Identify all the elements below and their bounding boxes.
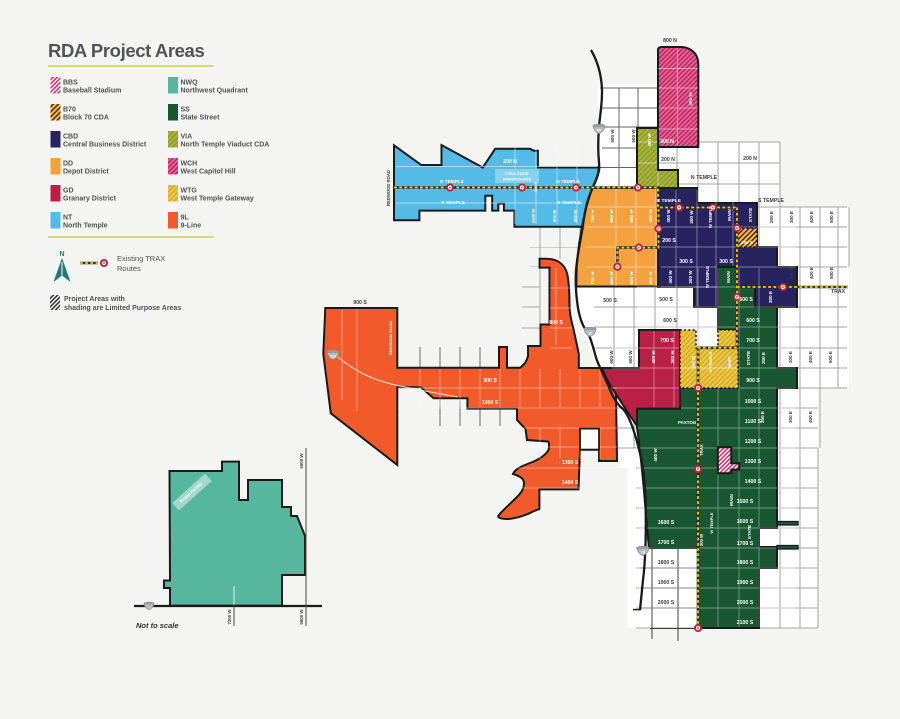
svg-text:MAIN: MAIN [726,270,731,282]
svg-text:Existing TRAX: Existing TRAX [117,254,165,263]
svg-text:300 S: 300 S [679,259,693,265]
svg-text:1000 S: 1000 S [482,400,499,406]
svg-text:VIA: VIA [181,134,193,141]
svg-text:W TEMPLE: W TEMPLE [709,512,714,533]
svg-text:900 W: 900 W [552,210,557,222]
svg-text:400 E: 400 E [809,267,814,279]
svg-text:200 N: 200 N [661,157,675,163]
svg-text:7200 W: 7200 W [227,609,232,625]
svg-text:North Temple Viaduct CDA: North Temple Viaduct CDA [181,142,270,149]
svg-text:800 N: 800 N [663,38,677,44]
svg-text:500 E: 500 E [829,211,834,223]
svg-text:300 E: 300 E [789,211,794,223]
svg-text:1400 S: 1400 S [745,479,762,485]
svg-text:W TEMPLE: W TEMPLE [708,351,713,372]
svg-text:1600 S: 1600 S [658,520,675,526]
svg-text:200 W: 200 W [699,534,704,546]
svg-text:TRAX: TRAX [699,444,704,456]
svg-text:NWQ: NWQ [181,80,199,87]
svg-text:600 W: 600 W [609,271,614,285]
svg-text:REDWOOD ROAD: REDWOOD ROAD [386,170,391,206]
svg-text:200 E: 200 E [769,211,774,223]
svg-text:1600 S: 1600 S [737,519,754,525]
svg-text:1000 W: 1000 W [531,209,536,223]
svg-text:S TEMPLE: S TEMPLE [657,198,682,204]
svg-text:200 W: 200 W [689,210,694,224]
svg-text:300 W: 300 W [666,209,671,223]
svg-text:700 W: 700 W [590,209,595,223]
svg-text:W TEMPLE: W TEMPLE [705,266,710,288]
svg-text:500 W: 500 W [629,209,634,223]
svg-text:shading are Limited Purpose Ar: shading are Limited Purpose Areas [64,305,181,312]
svg-text:200 S: 200 S [741,240,753,245]
svg-text:500 W: 500 W [628,350,633,364]
svg-text:900 S: 900 S [746,378,760,384]
svg-text:N TEMPLE: N TEMPLE [691,175,718,181]
svg-text:215: 215 [330,355,336,359]
svg-text:STATE: STATE [747,525,752,539]
svg-text:700 S: 700 S [746,338,760,344]
svg-text:300 N: 300 N [660,139,674,145]
svg-text:GD: GD [63,188,74,195]
svg-text:2100 S: 2100 S [737,620,754,626]
svg-text:400 W: 400 W [653,448,658,462]
svg-text:RDA Project Areas: RDA Project Areas [48,40,204,61]
svg-text:400 E: 400 E [808,351,813,363]
svg-text:700 W: 700 W [590,271,595,285]
svg-text:400 E: 400 E [809,211,814,223]
svg-text:800 W: 800 W [573,210,578,222]
svg-text:Routes: Routes [117,264,141,273]
svg-text:FAIRGROUNDS: FAIRGROUNDS [503,178,532,182]
svg-text:500 S: 500 S [603,298,617,304]
svg-text:N TEMPLE: N TEMPLE [440,179,464,184]
svg-text:5600 W: 5600 W [299,453,304,469]
svg-text:15: 15 [588,332,592,336]
svg-text:PAXTON: PAXTON [678,420,696,425]
svg-text:NT: NT [63,215,73,222]
svg-text:200 E: 200 E [768,291,773,303]
svg-text:BBS: BBS [63,80,78,87]
svg-text:North Temple: North Temple [63,223,108,230]
svg-text:200 E: 200 E [761,352,766,364]
svg-text:WCH: WCH [181,161,198,168]
svg-text:5600 W: 5600 W [299,609,304,625]
svg-text:200 E: 200 E [760,411,765,423]
svg-text:500 E: 500 E [828,351,833,363]
svg-text:WTG: WTG [181,188,198,195]
svg-text:W TEMPLE: W TEMPLE [708,206,713,228]
svg-text:1800 S: 1800 S [658,560,675,566]
svg-text:S TEMPLE: S TEMPLE [758,198,784,204]
svg-text:N TEMPLE: N TEMPLE [556,179,580,184]
svg-text:600 W: 600 W [609,350,614,364]
svg-text:Block 70 CDA: Block 70 CDA [63,115,109,122]
svg-text:2000 S: 2000 S [658,600,675,606]
svg-text:300 W: 300 W [670,350,675,364]
svg-text:1900 S: 1900 S [737,580,754,586]
svg-text:300 E: 300 E [788,411,793,423]
svg-text:B70: B70 [63,107,76,114]
svg-text:STATE: STATE [746,351,751,365]
svg-text:MAIN: MAIN [729,493,734,505]
svg-text:S TEMPLE: S TEMPLE [557,200,580,205]
svg-text:9-Line: 9-Line [181,223,202,230]
svg-text:West Temple Gateway: West Temple Gateway [181,196,254,203]
svg-text:600 S: 600 S [746,318,760,324]
svg-text:200 W: 200 W [691,356,696,368]
svg-text:400 W: 400 W [647,133,652,147]
svg-text:1500 S: 1500 S [737,499,754,505]
svg-text:SS: SS [181,107,191,114]
svg-text:1700 S: 1700 S [737,541,754,547]
svg-text:1400 S: 1400 S [562,480,579,486]
svg-text:1200 S: 1200 S [745,439,762,445]
svg-text:Central Business District: Central Business District [63,142,147,149]
svg-text:300 S: 300 S [719,259,733,265]
svg-text:300 E: 300 E [789,267,794,279]
svg-text:Depot District: Depot District [63,169,110,176]
svg-text:15: 15 [641,551,645,555]
svg-text:2000 S: 2000 S [737,600,754,606]
svg-text:Granary District: Granary District [63,196,117,203]
svg-text:TRAX: TRAX [831,289,846,295]
svg-text:500 E: 500 E [829,267,834,279]
svg-text:500 W: 500 W [629,271,634,285]
svg-text:700 S: 700 S [660,338,674,344]
svg-text:200 N: 200 N [503,159,517,165]
svg-text:MAIN: MAIN [727,357,732,368]
svg-text:400 W: 400 W [648,271,653,285]
svg-text:UTAH STATE: UTAH STATE [505,172,529,176]
svg-text:1700 S: 1700 S [658,540,675,546]
svg-text:500 W: 500 W [631,129,636,143]
svg-text:Northwest Quadrant: Northwest Quadrant [181,88,249,95]
svg-text:200 S: 200 S [662,238,676,244]
svg-text:STATE: STATE [748,208,753,222]
svg-text:MAIN: MAIN [727,208,732,220]
svg-text:1300 S: 1300 S [562,460,579,466]
svg-text:600 W: 600 W [609,209,614,223]
svg-text:9L: 9L [181,215,190,222]
svg-text:500 S: 500 S [739,297,753,303]
svg-text:300 W: 300 W [668,270,673,284]
svg-text:800 S: 800 S [549,320,563,326]
svg-text:1000 S: 1000 S [745,399,762,405]
svg-text:600 S: 600 S [663,318,677,324]
svg-text:900 S: 900 S [353,300,367,306]
svg-text:300 W: 300 W [688,92,693,106]
svg-text:500 S: 500 S [659,297,673,303]
svg-text:West Capitol Hill: West Capitol Hill [181,169,236,176]
svg-text:DD: DD [63,161,73,168]
svg-text:CBD: CBD [63,134,78,141]
svg-text:1900 S: 1900 S [658,580,675,586]
svg-text:400 W: 400 W [648,209,653,223]
svg-text:1800 S: 1800 S [737,560,754,566]
svg-text:N: N [59,251,64,258]
svg-text:200 N: 200 N [533,182,538,193]
svg-text:Baseball Stadium: Baseball Stadium [63,88,121,95]
svg-text:400 W: 400 W [651,350,656,364]
svg-text:200 N: 200 N [743,156,757,162]
svg-text:Project Areas with: Project Areas with [64,296,125,303]
svg-text:State Street: State Street [181,115,221,122]
svg-text:Not to scale: Not to scale [136,621,179,630]
svg-text:900 S: 900 S [483,378,497,384]
svg-text:600 W: 600 W [610,129,615,143]
svg-text:S TEMPLE: S TEMPLE [441,200,464,205]
svg-text:1300 S: 1300 S [745,459,762,465]
svg-text:80: 80 [597,129,601,133]
svg-text:400 E: 400 E [808,411,813,423]
svg-text:300 E: 300 E [788,351,793,363]
svg-text:REDWOOD ROAD: REDWOOD ROAD [388,321,393,355]
svg-text:200 W: 200 W [688,270,693,284]
